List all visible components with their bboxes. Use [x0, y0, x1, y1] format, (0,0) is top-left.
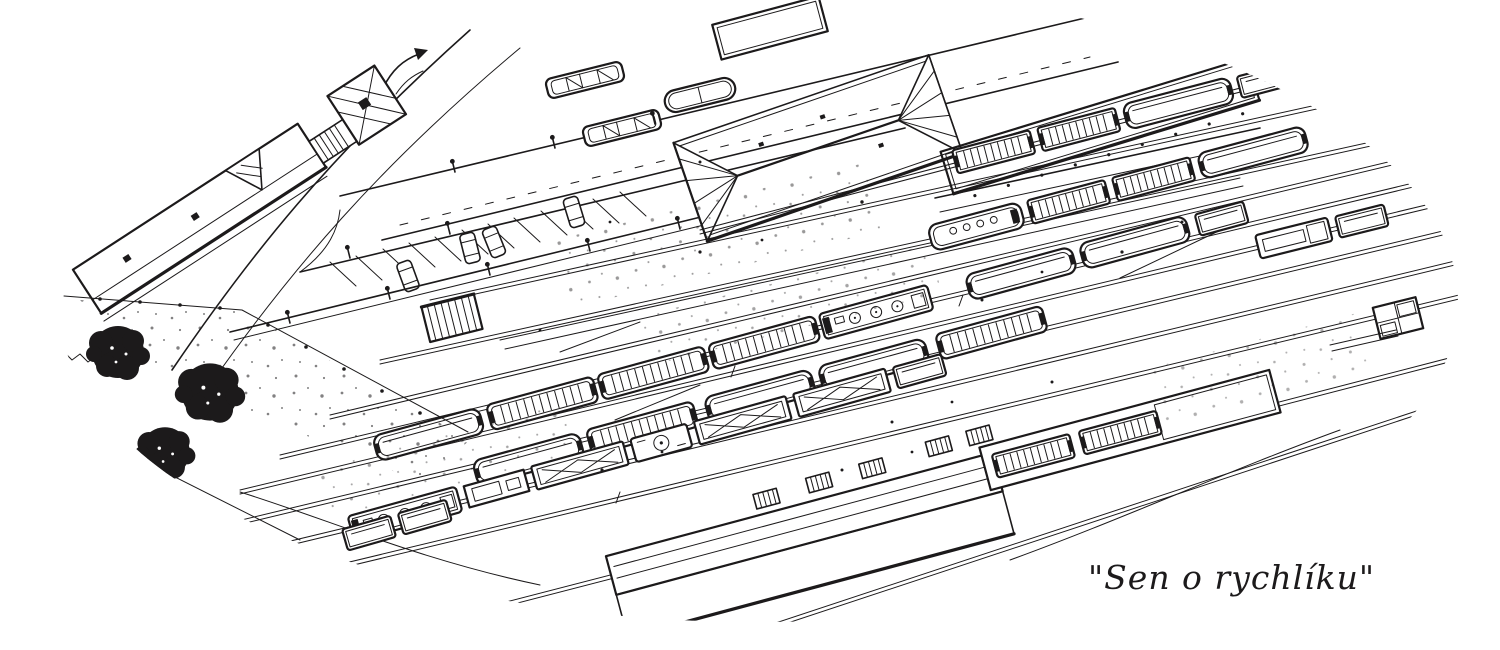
railway-yard-drawing	[0, 0, 1500, 650]
caption: "Sen o rychlíku"	[1088, 558, 1348, 597]
drawing-vignette	[0, 0, 1500, 650]
artwork-canvas: "Sen o rychlíku"	[0, 0, 1500, 650]
